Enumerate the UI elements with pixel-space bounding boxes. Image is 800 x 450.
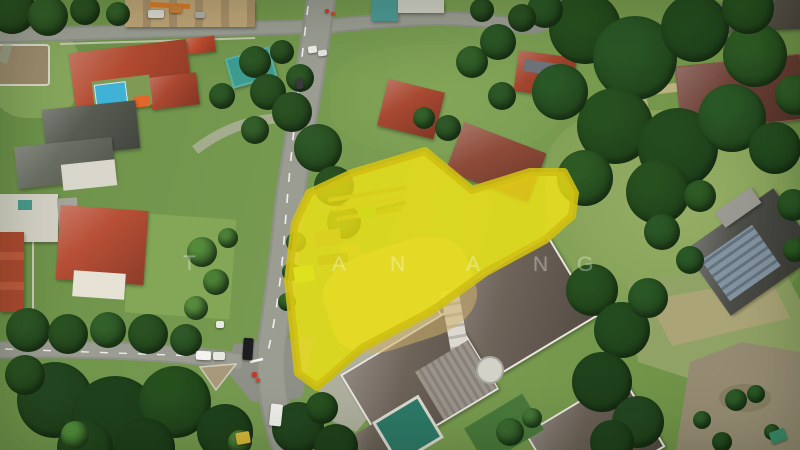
truck xyxy=(195,12,205,18)
white-car xyxy=(269,403,283,426)
white-van xyxy=(196,351,211,361)
vehicle-layer xyxy=(0,0,800,450)
motorbike xyxy=(325,9,329,13)
yellow-excavator xyxy=(235,431,251,445)
aerial-photograph: TANANG xyxy=(0,0,800,450)
teal-truck xyxy=(768,428,787,445)
crane-body xyxy=(358,208,376,218)
white-minivan xyxy=(216,321,224,328)
white-car xyxy=(308,45,318,53)
motorbike xyxy=(256,378,260,382)
motorbike xyxy=(331,12,335,15)
motorbike xyxy=(252,372,257,377)
green-shed xyxy=(293,265,315,284)
black-suv xyxy=(242,338,254,361)
white-car xyxy=(213,352,225,360)
white-car xyxy=(318,49,328,56)
truck xyxy=(148,10,164,18)
orange-truck xyxy=(170,6,182,13)
dark-car xyxy=(295,77,304,89)
